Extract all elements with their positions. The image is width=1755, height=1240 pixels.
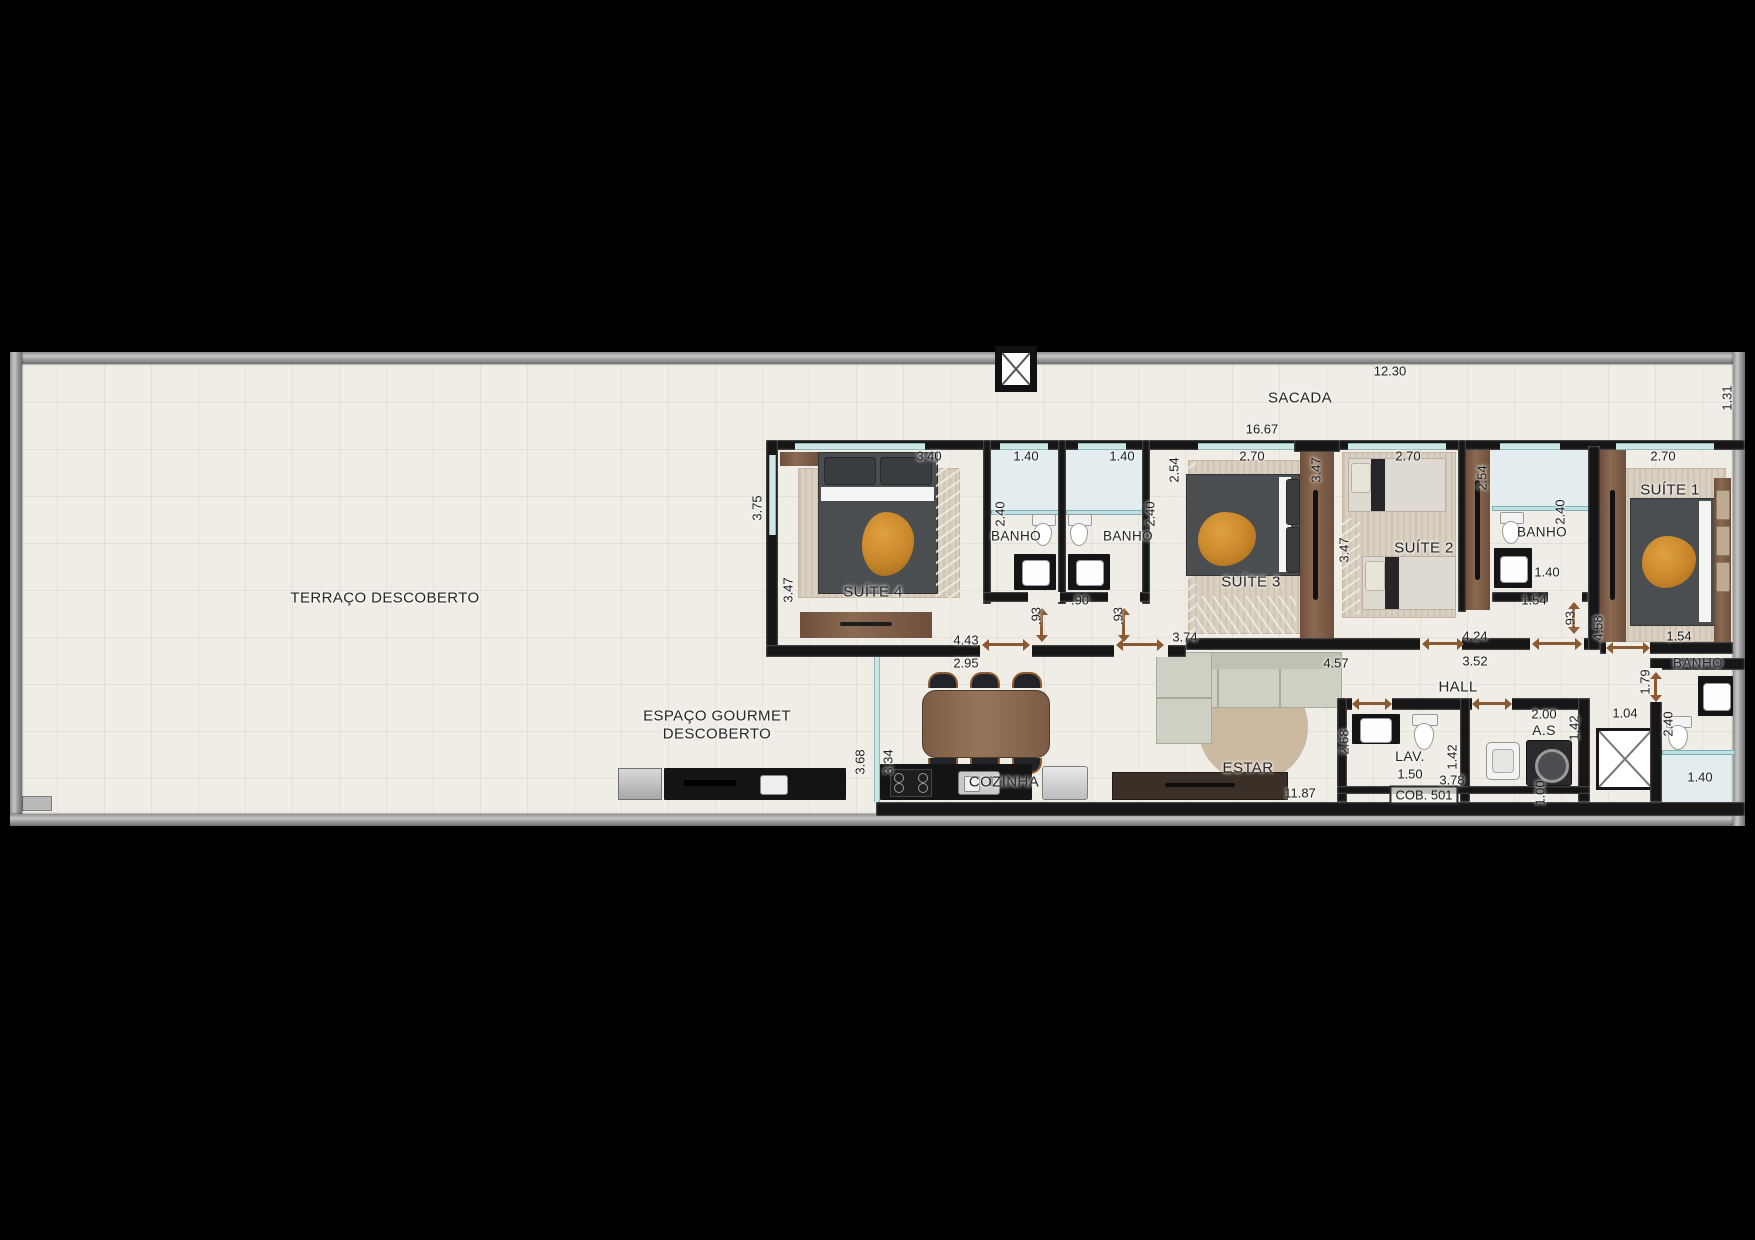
stove-icon [890, 769, 932, 797]
dimension-s4_d1: 3.75 [750, 495, 765, 520]
dimension-as_r: 1.42 [1567, 715, 1582, 740]
banho2-toilet-icon [1068, 514, 1090, 546]
dimension-gourmet_d: 3.68 [853, 749, 868, 774]
dimension-b2_wall: 2.54 [1167, 457, 1182, 482]
elevator-shaft-icon [1596, 728, 1654, 790]
floorplan-canvas: TERRAÇO DESCOBERTO SACADA ESPAÇO GOURMET… [0, 0, 1755, 1240]
dimension-s3_w: 2.70 [1239, 449, 1264, 464]
dimension-w443: 4.43 [953, 633, 978, 648]
label-banho-2: BANHO [1103, 529, 1153, 544]
dimension-sacada_len: 12.30 [1374, 364, 1407, 379]
door-opening [1108, 592, 1140, 602]
dining-chairs-top [926, 672, 1046, 688]
dimension-w352: 3.52 [1462, 654, 1487, 669]
suite4-headboard [780, 452, 820, 466]
dimension-b2_door: .93 [1111, 607, 1126, 625]
dimension-s1_w: 2.70 [1650, 449, 1675, 464]
banho3-sink-icon [1500, 556, 1528, 583]
wall [1294, 440, 1340, 452]
dimension-lav_w: 1.50 [1397, 767, 1422, 782]
suite1-headboard-bench [1714, 478, 1731, 646]
suite2-west-wardrobe [1334, 518, 1360, 614]
label-hall: HALL [1438, 679, 1477, 696]
window-glass [1500, 443, 1560, 450]
dimension-b1_d: 2.40 [993, 501, 1008, 526]
dimension-wall_458: 4.58 [1591, 615, 1606, 640]
suite2-bed-b [1362, 556, 1456, 610]
unit-label: COB. 501 [1389, 786, 1458, 805]
dimension-br_d: 2.40 [1661, 711, 1676, 736]
label-estar: ESTAR [1223, 760, 1274, 777]
dimension-lav_r: 1.42 [1445, 744, 1460, 769]
outer-wall-top [10, 352, 1745, 364]
label-gourmet-2: DESCOBERTO [663, 726, 771, 743]
wall [1458, 440, 1466, 612]
dimension-w378: 3.78 [1439, 773, 1464, 788]
suite4-wardrobe [936, 452, 980, 638]
label-as: A.S [1532, 722, 1556, 738]
wall [1058, 440, 1066, 604]
gourmet-counter [664, 768, 846, 800]
label-lav: LAV. [1395, 748, 1425, 764]
banho1-sink-icon [1022, 560, 1050, 586]
door-arrow-icon [984, 643, 1028, 646]
dimension-w424: 4.24 [1462, 629, 1487, 644]
dimension-s4_w: 3.40 [916, 449, 941, 464]
label-suite4: SUÍTE 4 [843, 584, 902, 601]
dimension-w374: 3.74 [1172, 630, 1197, 645]
suite1-west-wall-panel [1600, 450, 1626, 642]
dimension-br_wall: 1.79 [1638, 669, 1653, 694]
washing-machine-icon [1526, 740, 1572, 786]
dimension-coz_d: 3.34 [881, 749, 896, 774]
dimension-w100: 1.00 [1533, 780, 1548, 805]
dimension-b1_door: .93 [1029, 607, 1044, 625]
label-banho-3: BANHO [1517, 525, 1567, 540]
doormat [22, 796, 52, 811]
dimension-s3_wall: 3.47 [1309, 457, 1324, 482]
dimension-s2_wall: 3.47 [1337, 537, 1352, 562]
banho3-shower-glass [1492, 506, 1590, 511]
door-arrow-icon [1534, 642, 1580, 645]
label-gourmet-1: ESPAÇO GOURMET [643, 708, 791, 725]
gourmet-partition-glass [874, 657, 880, 802]
door-arrow-icon [1654, 674, 1657, 700]
dimension-ward_elev: 1.04 [1612, 706, 1637, 721]
dimension-w457: 4.57 [1323, 656, 1348, 671]
dimension-sacada_depth: 1.31 [1720, 385, 1735, 410]
dimension-apt_width: 16.67 [1246, 422, 1279, 437]
dimension-b3_s: 1.54 [1521, 593, 1546, 608]
dimension-br_w: 1.40 [1687, 770, 1712, 785]
dimension-b2_d: 2.40 [1143, 501, 1158, 526]
window-glass [769, 455, 776, 535]
label-banho-right: BANHO [1673, 656, 1723, 671]
door-arrow-icon [1354, 702, 1390, 705]
dimension-w295: 2.95 [953, 656, 978, 671]
dimension-lav_wall: 2.68 [1337, 729, 1352, 754]
dimension-w1187: 11.87 [1284, 786, 1316, 801]
label-banho-1: BANHO [991, 529, 1041, 544]
dimension-b2_w: 1.40 [1109, 449, 1134, 464]
gourmet-cabinet [618, 768, 662, 800]
wall [876, 802, 1745, 816]
banho-right-sink-icon [1703, 683, 1731, 711]
gourmet-sink-icon [760, 775, 788, 795]
banho3-shower-floor [1492, 450, 1588, 508]
dimension-b3_d: 2.40 [1553, 499, 1568, 524]
dimension-s1_door: .93 [1563, 611, 1578, 629]
dimension-s1_s: 1.54 [1666, 629, 1691, 644]
label-suite2: SUÍTE 2 [1394, 540, 1453, 557]
door-arrow-icon [1474, 702, 1510, 705]
door-arrow-icon [1608, 646, 1648, 649]
suite3-south-wardrobe [1196, 596, 1296, 636]
door-opening [1028, 592, 1060, 602]
door-arrow-icon [1424, 642, 1462, 645]
label-sacada: SACADA [1268, 390, 1332, 407]
column-icon [995, 346, 1037, 392]
label-suite3: SUÍTE 3 [1221, 574, 1280, 591]
suite2-bed-a [1348, 458, 1446, 512]
label-cozinha: COZINHA [969, 774, 1039, 791]
dimension-banhos_door: .90 [1071, 593, 1089, 608]
dimension-s4_d2: 3.47 [781, 577, 796, 602]
dimension-s2_w: 2.70 [1395, 449, 1420, 464]
outer-wall-left [10, 352, 22, 826]
banho-right-shower-glass [1662, 750, 1735, 755]
lav-toilet-icon [1412, 714, 1436, 750]
label-terraco: TERRAÇO DESCOBERTO [290, 590, 479, 607]
wall [983, 440, 991, 604]
gourmet-tv-icon [684, 780, 736, 786]
dining-table [922, 690, 1050, 758]
suite4-dresser [800, 612, 932, 638]
label-suite1: SUÍTE 1 [1640, 482, 1699, 499]
dimension-b3_w2: 1.40 [1534, 565, 1559, 580]
banho2-sink-icon [1076, 560, 1104, 586]
lav-sink-icon [1360, 718, 1392, 743]
window-glass [795, 443, 925, 450]
dimension-b3_wall: 2.54 [1475, 465, 1490, 490]
estar-sofa-chaise [1156, 652, 1212, 744]
dimension-as_w: 2.00 [1531, 707, 1556, 722]
fridge-icon [1042, 766, 1088, 800]
dimension-b1_w: 1.40 [1013, 449, 1038, 464]
laundry-tub-icon [1486, 742, 1520, 780]
